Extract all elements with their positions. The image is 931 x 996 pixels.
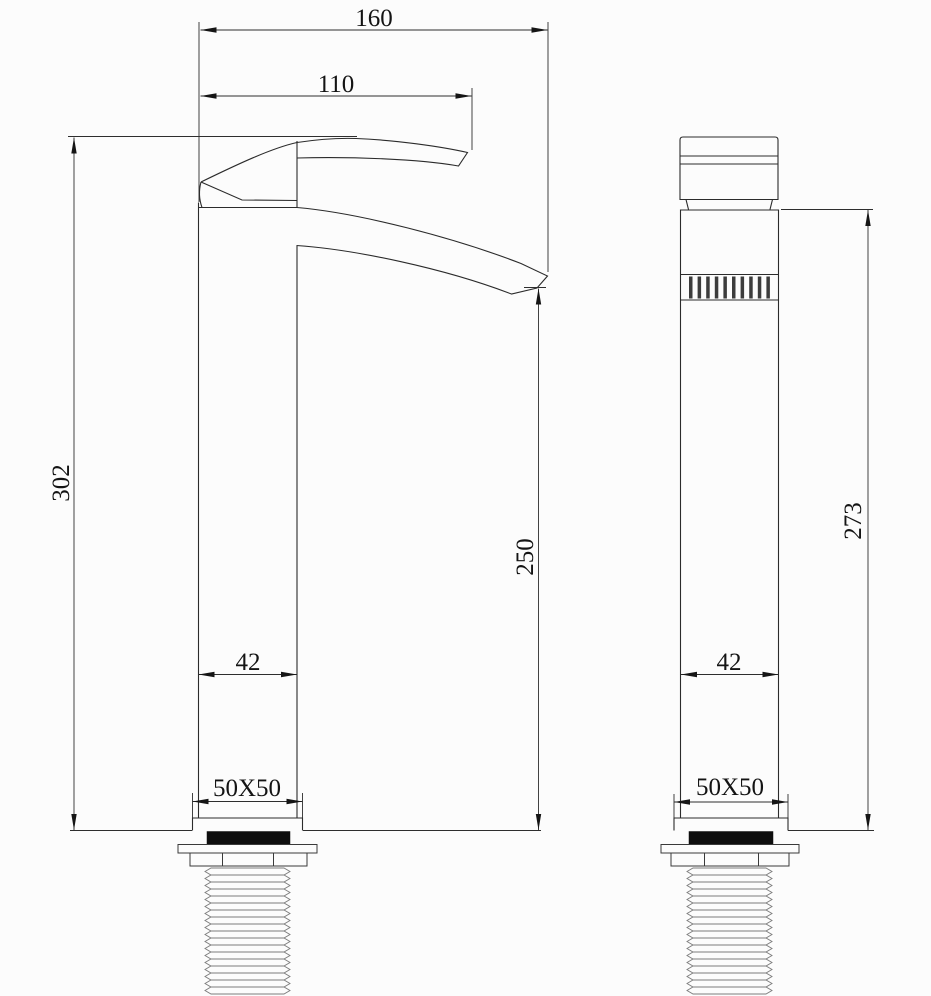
side-gasket	[689, 832, 773, 845]
dim-overall-width-160: 160	[199, 5, 548, 272]
arrowhead	[763, 672, 779, 677]
extension-lines	[199, 22, 548, 272]
dim-label-50x50-side: 50X50	[696, 774, 764, 801]
arrowhead	[532, 27, 548, 32]
dim-side-height-273: 273	[781, 210, 873, 831]
dim-label-250: 250	[512, 538, 539, 576]
dim-label-273: 273	[840, 502, 867, 540]
front-body	[199, 141, 298, 818]
side-body-outline	[681, 210, 779, 818]
side-nut-facets	[705, 853, 759, 866]
dim-front-body-width-42: 42	[199, 649, 298, 677]
front-gasket	[207, 832, 290, 845]
front-spout	[297, 208, 548, 295]
cap-neck	[686, 200, 773, 210]
arrowhead	[865, 210, 870, 226]
dim-label-42-front: 42	[236, 649, 261, 676]
dim-label-302: 302	[48, 464, 75, 502]
side-base-assembly	[661, 818, 799, 994]
dim-overall-height-302: 302	[48, 137, 357, 831]
dim-label-160: 160	[355, 5, 393, 32]
arrowhead	[71, 814, 76, 830]
arrowhead	[193, 799, 209, 804]
front-base-assembly	[178, 818, 317, 994]
knurl-band-edges	[681, 275, 779, 301]
dim-spout-height-250: 250	[512, 288, 546, 831]
faucet-technical-drawing: 160 110 302 250 42 50X50	[0, 0, 931, 996]
arrowhead	[201, 93, 217, 98]
knurl-band-ribs	[689, 277, 770, 299]
handle-underside	[201, 182, 297, 201]
side-view	[661, 137, 799, 994]
front-nut-facets	[223, 853, 274, 866]
dim-label-42-side: 42	[717, 649, 742, 676]
side-handle-cap	[680, 137, 778, 210]
arrowhead	[281, 672, 297, 677]
front-view	[178, 138, 548, 994]
cap-band-lines	[680, 156, 778, 164]
arrowhead	[456, 93, 472, 98]
arrowhead	[71, 138, 76, 154]
arrowhead	[865, 814, 870, 830]
cover-plate-outline	[297, 138, 468, 166]
dim-label-50x50-front: 50X50	[213, 775, 281, 802]
arrowhead	[536, 289, 541, 305]
side-base-plate	[674, 818, 788, 831]
handle-pivot-arc	[199, 182, 202, 208]
arrowhead	[536, 814, 541, 830]
side-threaded-shank	[687, 868, 772, 994]
front-threaded-shank	[205, 868, 290, 994]
front-base-plate	[193, 818, 303, 831]
front-flange	[178, 845, 317, 854]
cap-outline	[680, 137, 778, 200]
dim-side-base-50x50: 50X50	[674, 774, 788, 818]
arrowhead	[199, 672, 215, 677]
arrowhead	[681, 672, 697, 677]
side-body	[681, 210, 779, 818]
front-mounting-nut	[190, 853, 307, 866]
arrowhead	[674, 799, 690, 804]
handle-top-edge	[201, 143, 297, 183]
dim-label-110: 110	[318, 71, 355, 98]
dim-side-body-width-42: 42	[681, 649, 779, 677]
front-handle-lever	[199, 143, 297, 208]
arrowhead	[287, 799, 303, 804]
side-flange	[661, 845, 799, 854]
dim-front-base-50x50: 50X50	[193, 775, 303, 818]
front-spout-cover-plate	[297, 138, 468, 166]
arrowhead	[201, 27, 217, 32]
spout-outline	[297, 208, 548, 295]
arrowhead	[772, 799, 788, 804]
side-mounting-nut	[671, 853, 789, 866]
